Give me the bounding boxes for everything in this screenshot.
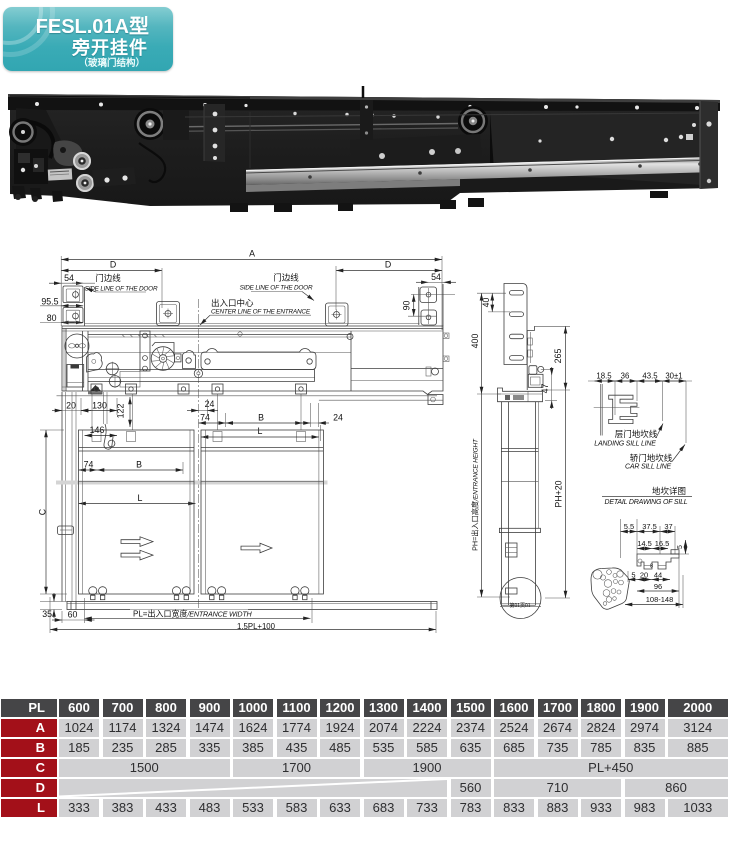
svg-text:出入口中心: 出入口中心 — [211, 298, 254, 308]
svg-text:40: 40 — [481, 298, 491, 308]
svg-text:130: 130 — [92, 401, 107, 411]
svg-text:96: 96 — [654, 582, 662, 591]
svg-text:CENTER LINE OF THE ENTRANCE: CENTER LINE OF THE ENTRANCE — [211, 309, 311, 316]
svg-text:5.5: 5.5 — [624, 522, 634, 531]
svg-text:80: 80 — [47, 313, 57, 323]
svg-text:8: 8 — [650, 564, 653, 570]
svg-text:L: L — [258, 426, 263, 436]
svg-text:CAR SILL LINE: CAR SILL LINE — [625, 464, 671, 471]
svg-text:24: 24 — [205, 399, 215, 409]
svg-text:D: D — [385, 260, 391, 270]
svg-text:A: A — [249, 249, 255, 259]
svg-text:层门地坎线: 层门地坎线 — [615, 429, 658, 439]
svg-text:C: C — [38, 508, 48, 515]
svg-text:SIDE LINE OF THE DOOR: SIDE LINE OF THE DOOR — [85, 286, 158, 293]
svg-text:B: B — [258, 413, 264, 423]
svg-text:95.5: 95.5 — [41, 297, 58, 307]
svg-text:PH+20: PH+20 — [554, 480, 564, 507]
svg-text:PL=出入口宽度/ENTRANCE WIDTH: PL=出入口宽度/ENTRANCE WIDTH — [133, 609, 253, 619]
svg-text:14.5: 14.5 — [637, 539, 652, 548]
svg-text:16.5: 16.5 — [655, 539, 670, 548]
svg-text:20: 20 — [66, 401, 76, 411]
svg-text:43.5: 43.5 — [642, 372, 658, 381]
svg-text:108-148: 108-148 — [646, 595, 674, 604]
svg-text:74: 74 — [84, 460, 94, 470]
svg-text:44: 44 — [654, 571, 662, 580]
svg-text:SIDE LINE OF THE DOOR: SIDE LINE OF THE DOOR — [240, 285, 313, 292]
svg-text:门边线: 门边线 — [273, 273, 299, 283]
svg-text:地坎详图: 地坎详图 — [652, 486, 686, 496]
svg-text:265: 265 — [553, 349, 563, 364]
svg-text:DETAIL DRAWING OF SILL: DETAIL DRAWING OF SILL — [605, 499, 688, 506]
svg-text:122: 122 — [116, 404, 126, 419]
svg-text:B: B — [136, 460, 142, 470]
svg-text:37: 37 — [664, 522, 672, 531]
svg-text:54: 54 — [64, 273, 74, 283]
svg-text:18.5: 18.5 — [596, 372, 612, 381]
svg-text:LANDING SILL LINE: LANDING SILL LINE — [594, 441, 656, 448]
svg-text:1.5PL+100: 1.5PL+100 — [237, 622, 276, 631]
svg-text:5: 5 — [677, 545, 684, 549]
svg-text:PH=出入口高度/ENTRANCE HEIGHT: PH=出入口高度/ENTRANCE HEIGHT — [471, 438, 480, 551]
svg-text:D: D — [110, 260, 116, 270]
svg-text:400: 400 — [470, 334, 480, 349]
svg-text:L: L — [138, 493, 143, 503]
svg-text:37.5: 37.5 — [642, 522, 657, 531]
svg-text:47: 47 — [540, 384, 550, 394]
svg-text:60: 60 — [68, 610, 78, 620]
svg-text:5: 5 — [631, 571, 635, 580]
svg-text:90: 90 — [402, 301, 412, 311]
svg-text:36: 36 — [621, 372, 630, 381]
svg-text:30±1: 30±1 — [665, 372, 682, 381]
svg-text:轿门地坎线: 轿门地坎线 — [630, 453, 673, 463]
svg-text:第01页01: 第01页01 — [509, 602, 530, 609]
svg-text:24: 24 — [333, 413, 343, 423]
svg-text:74: 74 — [200, 413, 210, 423]
svg-text:35: 35 — [42, 609, 52, 619]
svg-text:20: 20 — [640, 571, 648, 580]
svg-text:54: 54 — [431, 272, 441, 282]
svg-text:门边线: 门边线 — [95, 273, 121, 283]
